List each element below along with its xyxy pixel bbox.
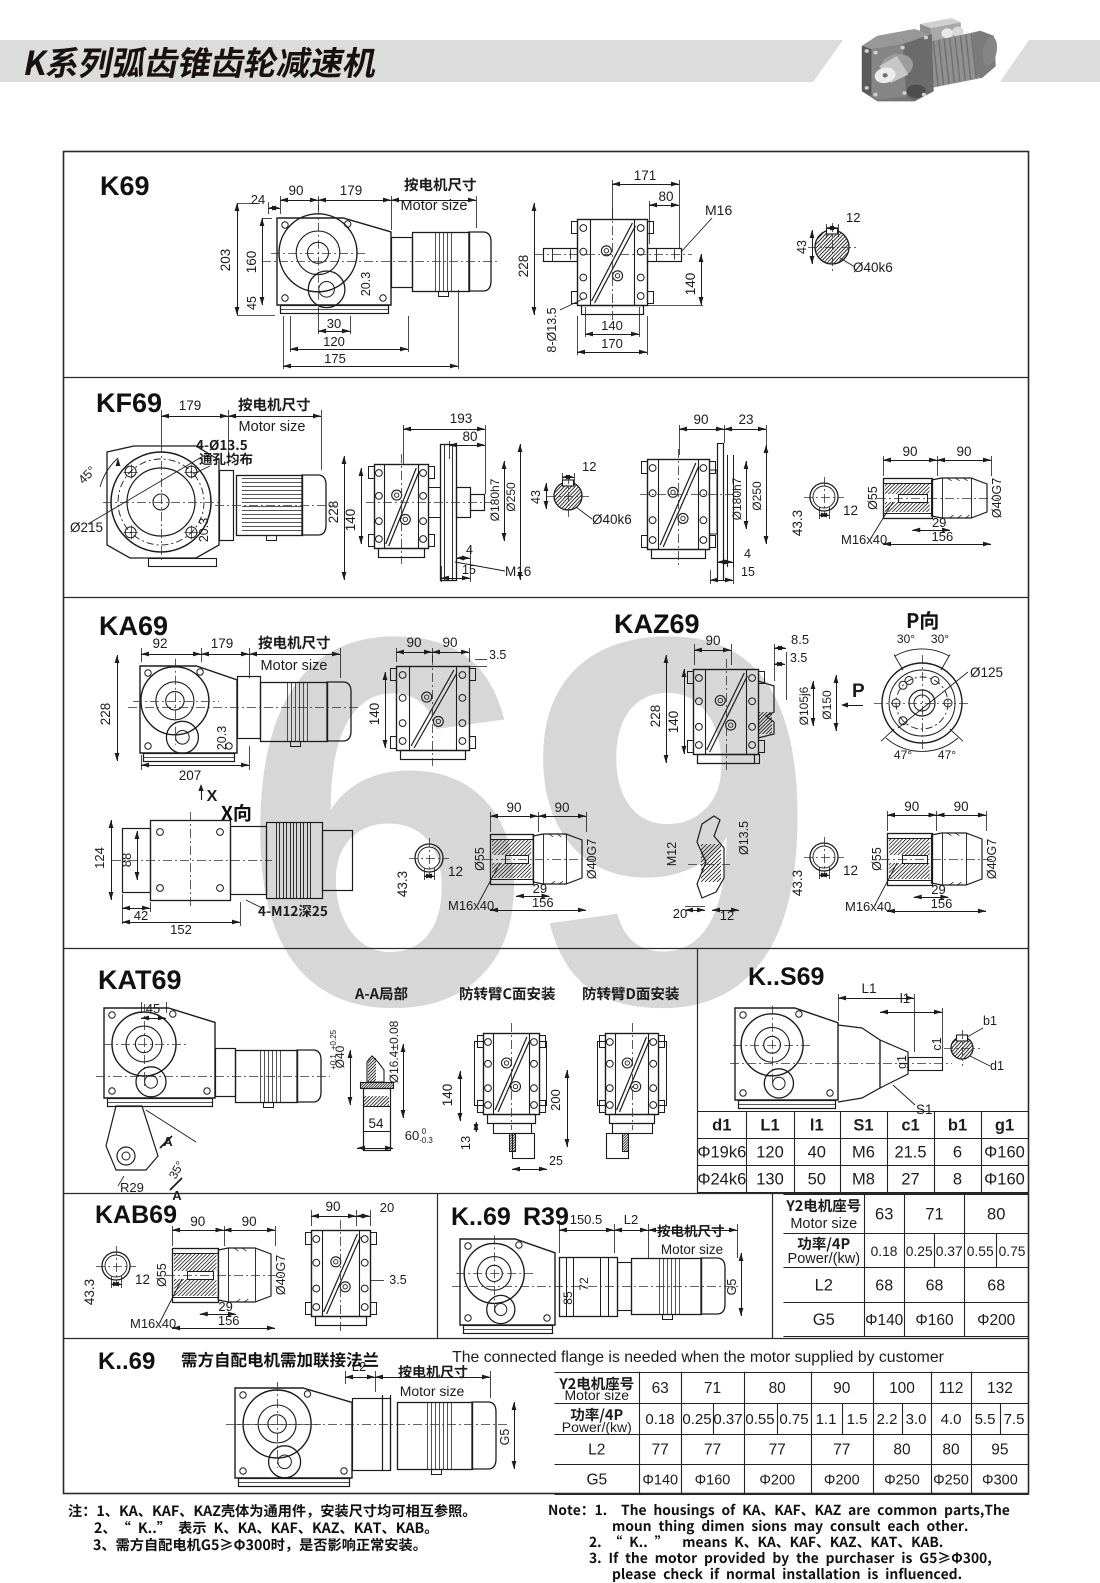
svg-text:G5: G5: [586, 1472, 607, 1489]
svg-text:43.3: 43.3: [790, 510, 805, 536]
svg-text:25: 25: [549, 1154, 563, 1168]
svg-text:179: 179: [340, 183, 363, 198]
svg-text:77: 77: [652, 1442, 669, 1459]
svg-text:Ø40G7: Ø40G7: [985, 839, 999, 879]
svg-text:80: 80: [658, 189, 673, 204]
svg-text:Φ160: Φ160: [695, 1473, 731, 1489]
svg-text:5.5: 5.5: [975, 1411, 996, 1428]
svg-text:d1: d1: [712, 1117, 731, 1135]
svg-text:90: 90: [554, 800, 569, 815]
svg-text:170: 170: [601, 336, 623, 351]
svg-text:0.37: 0.37: [713, 1411, 742, 1428]
svg-text:Φ200: Φ200: [824, 1473, 860, 1489]
svg-text:Ø150: Ø150: [820, 690, 834, 720]
svg-text:77: 77: [833, 1442, 850, 1459]
svg-text:KAB69: KAB69: [95, 1201, 177, 1229]
svg-text:21.5: 21.5: [894, 1144, 926, 1162]
svg-text:S1: S1: [853, 1117, 873, 1135]
svg-text:Φ200: Φ200: [759, 1473, 795, 1489]
svg-text:R39: R39: [523, 1203, 569, 1231]
svg-text:Ø180h7: Ø180h7: [488, 478, 502, 521]
svg-text:140: 140: [343, 509, 358, 532]
svg-text:95: 95: [991, 1442, 1008, 1459]
svg-text:Φ160: Φ160: [984, 1171, 1025, 1189]
svg-text:90: 90: [693, 412, 708, 427]
svg-text:152: 152: [170, 922, 192, 937]
svg-text:50: 50: [808, 1171, 826, 1189]
svg-text:Motor size: Motor size: [261, 658, 328, 674]
svg-text:90: 90: [904, 799, 919, 814]
svg-text:6: 6: [953, 1144, 962, 1162]
svg-text:20.3: 20.3: [197, 518, 211, 542]
svg-text:Φ160: Φ160: [984, 1144, 1025, 1162]
svg-text:R29: R29: [120, 1180, 144, 1195]
svg-text:140: 140: [440, 1084, 455, 1107]
svg-text:43.3: 43.3: [82, 1279, 97, 1305]
svg-text:3.5: 3.5: [489, 648, 506, 662]
svg-text:b1: b1: [983, 1014, 997, 1028]
svg-text:90: 90: [325, 1199, 340, 1214]
svg-text:43: 43: [529, 490, 543, 504]
svg-text:Ø16.4±0.08: Ø16.4±0.08: [387, 1020, 401, 1083]
svg-text:12: 12: [135, 1272, 150, 1287]
svg-text:0.75: 0.75: [999, 1244, 1026, 1259]
svg-text:7.5: 7.5: [1004, 1411, 1025, 1428]
svg-text:130: 130: [756, 1171, 784, 1189]
svg-text:63: 63: [875, 1206, 893, 1224]
svg-text:90: 90: [705, 633, 720, 648]
svg-text:63: 63: [652, 1380, 669, 1397]
svg-text:90: 90: [442, 635, 457, 650]
svg-text:140: 140: [683, 273, 698, 296]
svg-text:M16x40: M16x40: [841, 532, 887, 547]
svg-text:200: 200: [548, 1089, 563, 1111]
svg-text:g1: g1: [995, 1117, 1014, 1135]
svg-text:80: 80: [893, 1442, 911, 1459]
svg-text:Motor size: Motor size: [400, 1383, 465, 1399]
svg-text:80: 80: [987, 1206, 1005, 1224]
svg-text:27: 27: [901, 1171, 919, 1189]
svg-text:Power/(kw): Power/(kw): [562, 1419, 632, 1435]
svg-text:228: 228: [98, 703, 113, 726]
svg-text:d1: d1: [990, 1059, 1004, 1073]
svg-text:M12: M12: [665, 842, 679, 866]
svg-text:132: 132: [987, 1380, 1013, 1397]
svg-text:0.55: 0.55: [967, 1244, 994, 1259]
svg-text:45: 45: [146, 1001, 160, 1016]
svg-text:Ø40k6: Ø40k6: [853, 260, 893, 275]
svg-text:156: 156: [532, 895, 554, 910]
svg-text:80: 80: [942, 1442, 960, 1459]
svg-text:Φ200: Φ200: [977, 1312, 1016, 1329]
svg-text:K..S69: K..S69: [748, 963, 824, 991]
svg-text:47°: 47°: [894, 748, 912, 762]
svg-text:l1: l1: [900, 991, 911, 1006]
svg-text:179: 179: [211, 636, 234, 651]
svg-text:140: 140: [666, 711, 681, 734]
svg-text:Ø105j6: Ø105j6: [797, 686, 811, 725]
svg-text:Ø125: Ø125: [970, 665, 1003, 680]
svg-text:90: 90: [902, 444, 917, 459]
svg-text:KA69: KA69: [99, 611, 168, 641]
svg-text:M6: M6: [852, 1144, 875, 1162]
svg-text:124: 124: [92, 847, 107, 869]
svg-text:0.18: 0.18: [871, 1244, 898, 1259]
svg-text:77: 77: [704, 1442, 721, 1459]
svg-text:3.5: 3.5: [790, 651, 807, 665]
svg-text:g1: g1: [895, 1055, 909, 1069]
svg-text:1.1: 1.1: [816, 1411, 837, 1428]
svg-text:80: 80: [769, 1380, 787, 1397]
svg-text:Motor size: Motor size: [401, 198, 468, 214]
svg-text:The connected flange is needed: The connected flange is needed when the …: [452, 1349, 944, 1366]
svg-text:203: 203: [218, 249, 233, 272]
svg-text:68: 68: [875, 1278, 893, 1295]
svg-text:-0.3: -0.3: [419, 1136, 433, 1145]
svg-text:G5: G5: [498, 1429, 512, 1446]
svg-text:4: 4: [744, 547, 751, 561]
svg-text:150.5: 150.5: [570, 1212, 603, 1227]
svg-text:Motor size: Motor size: [239, 419, 306, 435]
svg-text:12: 12: [843, 503, 858, 518]
svg-text:90: 90: [833, 1380, 851, 1397]
svg-text:Φ250: Φ250: [884, 1473, 920, 1489]
svg-text:160: 160: [244, 251, 259, 274]
svg-text:69: 69: [241, 529, 809, 1115]
svg-text:43.3: 43.3: [395, 871, 410, 897]
svg-text:M16: M16: [705, 202, 732, 218]
svg-text:156: 156: [218, 1313, 240, 1328]
svg-text:L2: L2: [588, 1442, 605, 1459]
svg-text:71: 71: [925, 1206, 943, 1224]
svg-text:30°: 30°: [931, 632, 949, 646]
svg-text:12: 12: [582, 459, 596, 474]
svg-text:30: 30: [327, 316, 341, 331]
svg-text:29: 29: [932, 515, 946, 530]
svg-text:207: 207: [179, 768, 202, 783]
svg-text:8.5: 8.5: [791, 632, 809, 647]
svg-text:+0.1: +0.1: [329, 1054, 338, 1070]
svg-text:77: 77: [769, 1442, 786, 1459]
svg-text:0: 0: [422, 1127, 427, 1136]
svg-text:L1: L1: [861, 981, 876, 996]
svg-text:Motor size: Motor size: [790, 1216, 857, 1232]
svg-text:29: 29: [931, 882, 945, 897]
svg-text:Ø13.5: Ø13.5: [737, 821, 751, 855]
svg-text:30°: 30°: [897, 632, 915, 646]
svg-text:72: 72: [577, 1277, 591, 1291]
svg-text:156: 156: [932, 529, 954, 544]
svg-text:Ø40G7: Ø40G7: [274, 1255, 288, 1295]
svg-text:47°: 47°: [938, 748, 956, 762]
svg-text:K69: K69: [100, 171, 150, 201]
svg-text:8-Ø13.5: 8-Ø13.5: [545, 307, 559, 352]
svg-text:Motor size: Motor size: [661, 1242, 723, 1257]
svg-text:68: 68: [987, 1278, 1005, 1295]
svg-text:l1: l1: [810, 1117, 824, 1135]
svg-text:M16x40: M16x40: [845, 899, 891, 914]
svg-text:8: 8: [953, 1171, 962, 1189]
svg-text:71: 71: [704, 1380, 721, 1397]
svg-text:Φ160: Φ160: [915, 1312, 954, 1329]
svg-text:K..69: K..69: [98, 1348, 155, 1375]
svg-text:20: 20: [380, 1200, 394, 1215]
svg-text:90: 90: [954, 799, 969, 814]
svg-text:KAT69: KAT69: [98, 965, 182, 995]
svg-text:Φ24k6: Φ24k6: [697, 1171, 746, 1189]
svg-text:0.25: 0.25: [682, 1411, 711, 1428]
svg-text:23: 23: [738, 412, 753, 427]
svg-text:90: 90: [288, 183, 303, 198]
svg-text:c1: c1: [901, 1117, 919, 1135]
svg-text:140: 140: [601, 318, 623, 333]
svg-text:140: 140: [367, 703, 382, 726]
svg-text:Ø180h7: Ø180h7: [730, 477, 744, 520]
svg-text:0.55: 0.55: [745, 1411, 774, 1428]
svg-text:85: 85: [561, 1291, 575, 1305]
svg-text:80: 80: [462, 429, 477, 444]
svg-text:120: 120: [323, 334, 345, 349]
svg-text:20: 20: [673, 906, 687, 921]
svg-text:P: P: [852, 681, 865, 702]
svg-text:12: 12: [843, 863, 858, 878]
svg-text:12: 12: [846, 210, 860, 225]
svg-text:Φ19k6: Φ19k6: [697, 1144, 746, 1162]
svg-text:29: 29: [533, 881, 547, 896]
svg-text:193: 193: [450, 411, 473, 426]
svg-text:G5: G5: [725, 1279, 739, 1296]
svg-text:Ø40G7: Ø40G7: [990, 478, 1004, 518]
svg-text:K..69: K..69: [451, 1203, 511, 1231]
svg-text:29: 29: [218, 1299, 232, 1314]
svg-text:156: 156: [931, 896, 953, 911]
svg-text:Ø55: Ø55: [155, 1263, 169, 1287]
svg-text:0.37: 0.37: [936, 1244, 963, 1259]
svg-text:90: 90: [506, 800, 521, 815]
svg-text:KAZ69: KAZ69: [614, 609, 700, 639]
svg-text:+0.25: +0.25: [329, 1029, 338, 1050]
svg-text:Φ140: Φ140: [642, 1473, 678, 1489]
svg-text:60: 60: [405, 1128, 419, 1143]
svg-text:S1: S1: [916, 1102, 933, 1117]
svg-text:0.75: 0.75: [779, 1411, 808, 1428]
svg-text:68: 68: [926, 1278, 944, 1295]
svg-text:88: 88: [119, 853, 134, 867]
svg-text:Ø55: Ø55: [473, 847, 487, 871]
svg-text:0.18: 0.18: [645, 1411, 674, 1428]
svg-text:b1: b1: [948, 1117, 967, 1135]
svg-text:15: 15: [741, 565, 755, 579]
svg-text:Ø40G7: Ø40G7: [585, 839, 599, 879]
svg-text:L2: L2: [815, 1277, 833, 1295]
svg-text:171: 171: [634, 168, 657, 183]
svg-text:Ø55: Ø55: [870, 847, 884, 871]
svg-text:45: 45: [245, 296, 259, 310]
svg-text:90: 90: [242, 1214, 257, 1229]
svg-text:M16: M16: [505, 564, 531, 579]
svg-text:43.3: 43.3: [790, 870, 805, 896]
svg-text:228: 228: [648, 705, 663, 728]
svg-text:120: 120: [756, 1144, 784, 1162]
svg-text:90: 90: [190, 1214, 205, 1229]
svg-text:228: 228: [326, 501, 341, 524]
svg-text:Ø55: Ø55: [866, 486, 880, 510]
svg-text:Φ140: Φ140: [865, 1312, 904, 1329]
svg-text:3.5: 3.5: [389, 1273, 406, 1287]
svg-text:Ø40k6: Ø40k6: [592, 512, 632, 527]
svg-text:1.5: 1.5: [847, 1411, 868, 1428]
svg-text:Ø250: Ø250: [750, 481, 764, 511]
svg-text:12: 12: [448, 864, 463, 879]
svg-text:Power/(kw): Power/(kw): [788, 1251, 861, 1267]
svg-text:0.25: 0.25: [906, 1244, 933, 1259]
svg-text:20.3: 20.3: [359, 272, 373, 296]
svg-text:M16x40: M16x40: [130, 1316, 176, 1331]
svg-text:L2: L2: [624, 1212, 638, 1227]
svg-text:175: 175: [324, 351, 346, 366]
svg-text:40: 40: [808, 1144, 826, 1162]
svg-text:Ø215: Ø215: [70, 520, 103, 535]
svg-text:Φ300: Φ300: [982, 1473, 1018, 1489]
svg-text:90: 90: [406, 635, 421, 650]
svg-text:c1: c1: [930, 1037, 944, 1050]
svg-text:13: 13: [458, 1136, 473, 1150]
svg-text:12: 12: [720, 908, 734, 923]
svg-text:Motor size: Motor size: [565, 1387, 630, 1403]
svg-text:4.0: 4.0: [941, 1411, 962, 1428]
svg-text:20.3: 20.3: [215, 726, 229, 750]
svg-text:90: 90: [956, 444, 971, 459]
svg-text:100: 100: [889, 1380, 915, 1397]
svg-text:4: 4: [466, 543, 473, 557]
svg-text:228: 228: [516, 255, 531, 278]
svg-text:KF69: KF69: [96, 388, 162, 418]
svg-text:2.2: 2.2: [877, 1411, 898, 1428]
svg-text:M8: M8: [852, 1171, 875, 1189]
svg-text:Φ250: Φ250: [933, 1473, 969, 1489]
svg-text:M16x40: M16x40: [448, 898, 494, 913]
svg-text:G5: G5: [813, 1311, 835, 1329]
svg-text:54: 54: [368, 1116, 384, 1131]
svg-text:112: 112: [939, 1380, 964, 1397]
svg-text:42: 42: [134, 908, 148, 923]
svg-text:Ø250: Ø250: [504, 482, 518, 512]
svg-text:43: 43: [795, 240, 809, 254]
svg-text:179: 179: [179, 398, 202, 413]
svg-text:24: 24: [251, 192, 265, 207]
svg-text:X: X: [207, 788, 218, 805]
svg-text:L1: L1: [760, 1117, 779, 1135]
svg-text:3.0: 3.0: [906, 1411, 927, 1428]
